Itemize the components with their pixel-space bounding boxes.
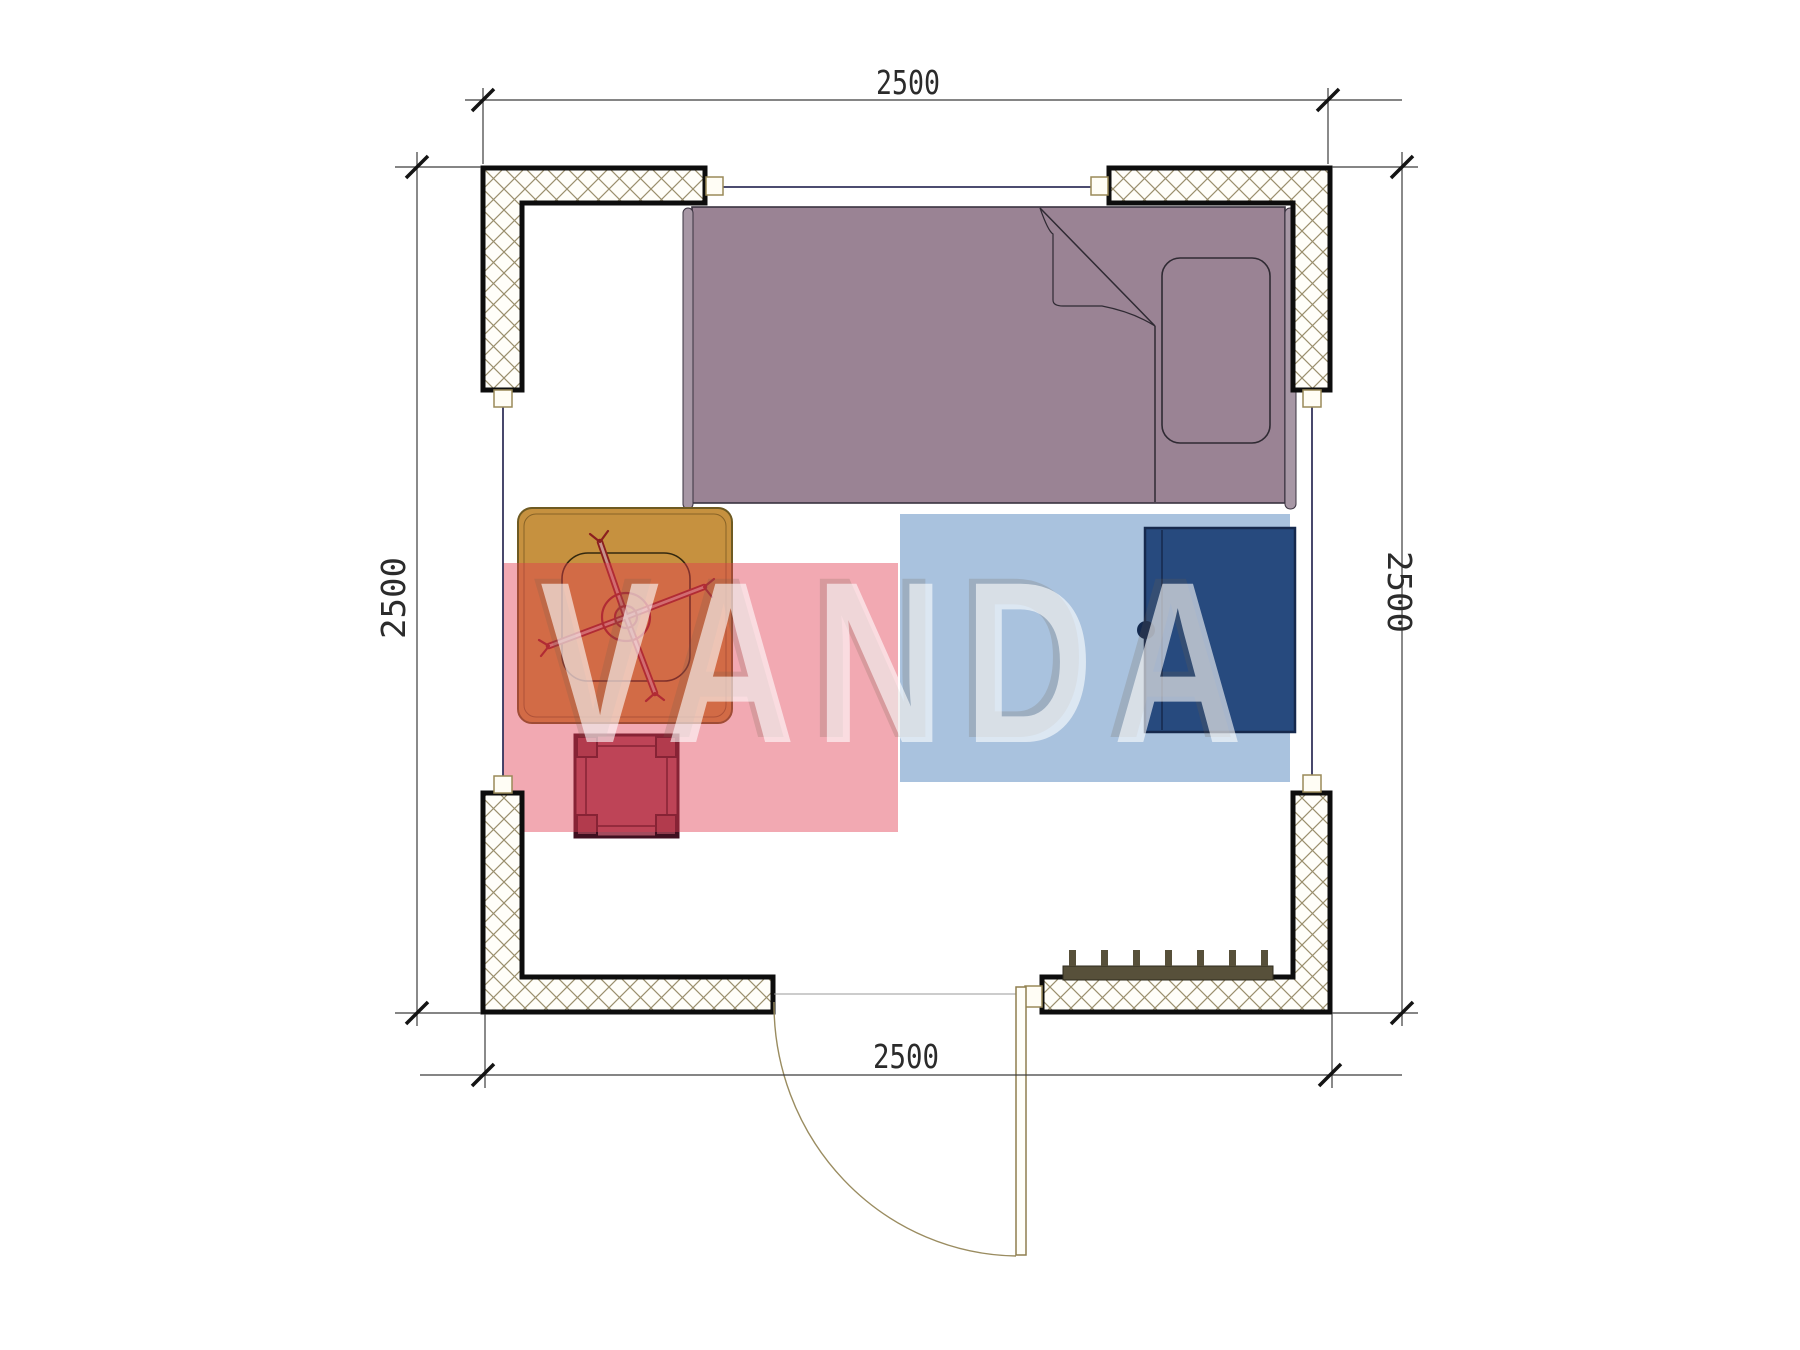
bed-rail-left <box>683 208 693 509</box>
bed-group <box>683 207 1296 509</box>
window-connector <box>1303 390 1321 407</box>
window-connector <box>706 177 723 195</box>
floor-plan-canvas: VANDA VANDA <box>0 0 1800 1350</box>
door-jamb <box>1025 986 1042 1007</box>
window-connector <box>494 776 512 793</box>
radiator-fin <box>1069 950 1076 966</box>
pillow <box>1162 258 1270 443</box>
dimension-text-bottom: 2500 <box>873 1037 939 1076</box>
radiator-fin <box>1101 950 1108 966</box>
dimension-text-right: 2500 <box>1380 551 1419 633</box>
door-leaf <box>1016 987 1026 1255</box>
dimension-text-top: 2500 <box>876 63 940 102</box>
radiator-fin <box>1261 950 1268 966</box>
door-group <box>774 986 1042 1256</box>
window-connector <box>1091 177 1108 195</box>
wall-top-left <box>483 168 705 390</box>
floor-plan-svg: VANDA VANDA <box>0 0 1800 1350</box>
dimension-text-left: 2500 <box>374 557 413 639</box>
radiator-fin <box>1197 950 1204 966</box>
radiator-fin <box>1133 950 1140 966</box>
radiator-fin <box>1165 950 1172 966</box>
radiator-fin <box>1229 950 1236 966</box>
radiator <box>1063 966 1273 980</box>
window-connector <box>494 390 512 407</box>
window-connector <box>1303 775 1321 792</box>
watermark-text: VANDA <box>540 533 1262 791</box>
radiator-group <box>1063 950 1273 980</box>
